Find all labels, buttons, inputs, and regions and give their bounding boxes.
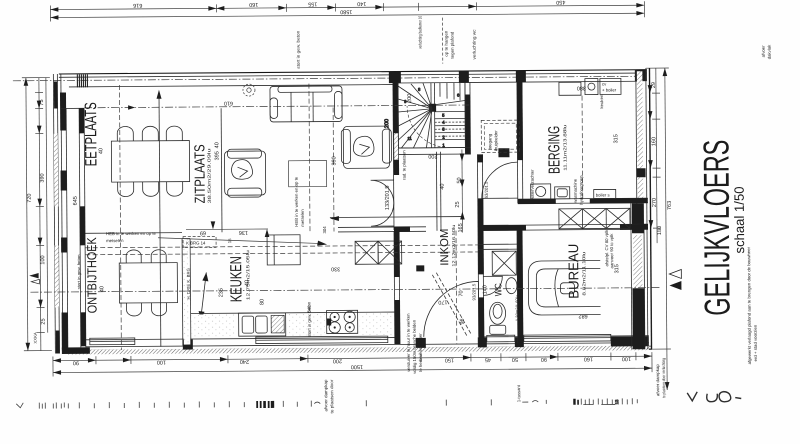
svg-text:stort in gew. beton: stort in gew. beton <box>296 30 301 69</box>
svg-text:90: 90 <box>73 359 79 365</box>
svg-text:69: 69 <box>200 229 206 235</box>
svg-text:200: 200 <box>428 153 437 159</box>
svg-text:136: 136 <box>239 229 248 235</box>
svg-text:50: 50 <box>457 177 463 183</box>
svg-text:80: 80 <box>260 299 266 305</box>
svg-text:610: 610 <box>224 100 233 106</box>
svg-text:8.82m2/11.10lu: 8.82m2/11.10lu <box>581 251 586 296</box>
svg-text:11.11m2/13.88lu: 11.11m2/13.88lu <box>562 124 567 171</box>
svg-text:15: 15 <box>227 238 232 243</box>
svg-text:verstuiver in muur in te werke: verstuiver in muur in te werken <box>406 313 411 372</box>
svg-text:12.75m2/15.05lu: 12.75m2/15.05lu <box>245 249 250 300</box>
svg-text:63/201.5: 63/201.5 <box>484 181 489 198</box>
svg-text:afvoer dampkap: afvoer dampkap <box>323 379 328 412</box>
svg-text:op te hangen: op te hangen <box>444 30 449 57</box>
svg-text:XXKA: XXKA <box>33 332 38 344</box>
svg-text:tegen plafond: tegen plafond <box>450 31 455 59</box>
svg-text:200: 200 <box>384 119 390 128</box>
svg-text:720: 720 <box>27 194 33 203</box>
svg-text:toegang: toegang <box>487 133 492 149</box>
svg-text:12.12m2/16.50lu: 12.12m2/16.50lu <box>451 224 456 267</box>
svg-text:HEB in te werken en op te: HEB in te werken en op te <box>106 231 157 236</box>
svg-text:1580: 1580 <box>340 8 352 14</box>
svg-text:WC: WC <box>493 283 504 296</box>
svg-text:waterverzachter: waterverzachter <box>530 169 535 200</box>
svg-text:11: 11 <box>407 136 412 141</box>
svg-text:93/201.5: 93/201.5 <box>471 283 476 300</box>
svg-text:180: 180 <box>657 226 663 235</box>
svg-text:395: 395 <box>214 151 220 160</box>
svg-text:315: 315 <box>614 264 620 273</box>
svg-text:390: 390 <box>40 173 46 182</box>
svg-text:1-tussant: 1-tussant <box>516 384 521 402</box>
svg-text:KEUKEN: KEUKEN <box>228 256 245 302</box>
svg-text:315: 315 <box>613 134 619 143</box>
svg-text:155: 155 <box>308 1 317 7</box>
svg-text:133/201.5: 133/201.5 <box>385 186 391 211</box>
svg-text:verluchting wc: verluchting wc <box>472 29 477 60</box>
svg-text:hydrofoorgroep: hydrofoorgroep <box>579 175 584 205</box>
svg-text:wasmachine: wasmachine <box>573 178 578 203</box>
svg-text:afvoer dampkap: afvoer dampkap <box>655 363 660 396</box>
svg-text:616: 616 <box>133 2 142 8</box>
svg-text:dakvlak: dakvlak <box>767 44 772 59</box>
svg-text:25: 25 <box>455 201 461 207</box>
svg-text:200: 200 <box>407 94 413 103</box>
svg-text:160: 160 <box>584 356 593 362</box>
svg-text:te herbruiken adruer: te herbruiken adruer <box>418 333 423 372</box>
svg-text:EETPLAATS: EETPLAATS <box>82 102 100 166</box>
svg-text:450: 450 <box>556 0 565 5</box>
svg-text:40: 40 <box>244 280 250 286</box>
svg-text:te plaatsen door verluchting: te plaatsen door verluchting <box>661 358 666 398</box>
svg-text:160: 160 <box>249 1 258 7</box>
svg-text:160: 160 <box>651 137 657 146</box>
svg-text:763: 763 <box>667 201 673 210</box>
svg-text:+ boiler: + boiler <box>602 87 617 92</box>
svg-text:verluchting badkamer 10: verluchting badkamer 10 <box>417 15 422 48</box>
svg-text:boiler s: boiler s <box>596 192 610 197</box>
svg-text:40: 40 <box>214 142 220 148</box>
svg-text:INKOM: INKOM <box>439 229 451 266</box>
svg-text:165: 165 <box>458 223 464 232</box>
svg-text:140: 140 <box>357 0 366 6</box>
svg-text:170: 170 <box>438 299 447 305</box>
svg-text:rad. te plaatsen: rad. te plaatsen <box>401 150 406 180</box>
svg-text:aanvoer 90 tc vplk: aanvoer 90 tc vplk <box>609 233 614 269</box>
svg-text:te plaatsen door: te plaatsen door <box>329 379 334 414</box>
svg-text:45: 45 <box>485 356 491 362</box>
svg-text:29: 29 <box>651 82 657 88</box>
svg-text:afgewerkt verlaagd plafond aan: afgewerkt verlaagd plafond aan te brenge… <box>746 246 752 364</box>
svg-text:100: 100 <box>40 255 46 264</box>
svg-text:96: 96 <box>460 318 466 324</box>
svg-text:erd + stad voorzien: erd + stad voorzien <box>753 324 758 361</box>
svg-text:afvoer: afvoer <box>761 45 766 58</box>
svg-text:235: 235 <box>218 288 224 297</box>
svg-text:100: 100 <box>622 355 631 361</box>
svg-text:metselen: metselen <box>106 238 124 243</box>
svg-text:682: 682 <box>578 313 587 319</box>
svg-text:kruipkelder: kruipkelder <box>493 130 498 152</box>
svg-text:voldig 150m branche belden: voldig 150m branche belden <box>412 319 417 374</box>
svg-text:380: 380 <box>577 85 586 91</box>
svg-text:70: 70 <box>458 290 464 296</box>
svg-text:200: 200 <box>333 357 342 363</box>
svg-text:40: 40 <box>99 286 105 292</box>
svg-text:K BRG 14: K BRG 14 <box>186 240 206 245</box>
svg-text:270: 270 <box>652 198 658 207</box>
svg-text:1500: 1500 <box>351 363 363 369</box>
svg-text:40: 40 <box>98 148 104 154</box>
svg-text:50: 50 <box>512 356 518 362</box>
svg-text:240: 240 <box>240 358 249 364</box>
svg-text:38.50m2/29.09lu: 38.50m2/29.09lu <box>206 147 211 203</box>
svg-text:HEB in te werken en op te: HEB in te werken en op te <box>294 176 299 227</box>
svg-text:BUREAU: BUREAU <box>565 244 581 299</box>
svg-text:390: 390 <box>331 156 337 165</box>
svg-text:ONTBIJTHOEK: ONTBIJTHOEK <box>84 237 100 313</box>
svg-text:100: 100 <box>157 359 166 365</box>
svg-text:645: 645 <box>73 196 79 205</box>
svg-text:schaal 1/50: schaal 1/50 <box>732 186 747 253</box>
svg-text:13: 13 <box>614 399 619 404</box>
svg-text:keuken: keuken <box>599 94 604 109</box>
svg-text:90: 90 <box>541 356 547 362</box>
svg-text:304: 304 <box>322 226 327 234</box>
svg-text:40: 40 <box>440 184 446 190</box>
svg-text:H. DRIE K. BRG: H. DRIE K. BRG <box>186 267 191 299</box>
svg-text:150: 150 <box>445 357 454 363</box>
svg-text:75: 75 <box>39 99 45 105</box>
svg-text:330: 330 <box>331 265 340 271</box>
svg-text:BERGING: BERGING <box>546 126 563 174</box>
svg-text:140: 140 <box>482 285 488 294</box>
svg-text:25: 25 <box>41 318 47 324</box>
svg-text:1.30m2/1.60lu: 1.30m2/1.60lu <box>514 295 519 322</box>
svg-text:540: 540 <box>307 305 312 313</box>
svg-text:metselen: metselen <box>300 209 305 227</box>
